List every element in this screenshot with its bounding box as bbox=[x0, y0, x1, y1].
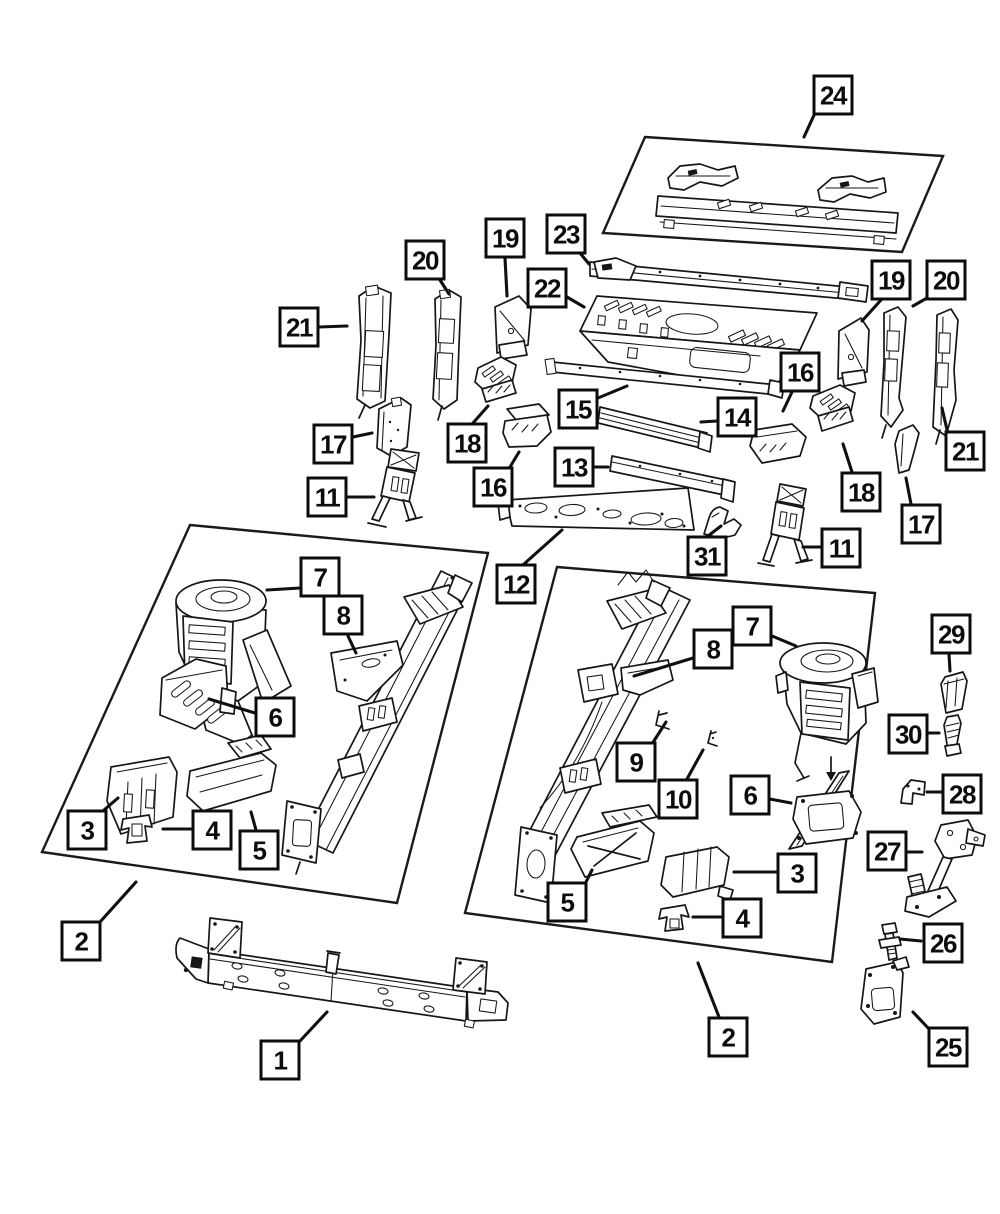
callout-number: 16 bbox=[480, 474, 506, 500]
callout-25[interactable]: 25 bbox=[928, 1027, 969, 1068]
callout-number: 8 bbox=[337, 602, 350, 628]
callout-number: 14 bbox=[724, 404, 750, 430]
callout-2[interactable]: 2 bbox=[61, 921, 102, 962]
callout-number: 10 bbox=[665, 786, 691, 812]
callout-number: 27 bbox=[874, 838, 900, 864]
callout-number: 4 bbox=[206, 817, 219, 843]
callout-15[interactable]: 15 bbox=[558, 389, 599, 430]
callout-3[interactable]: 3 bbox=[777, 853, 818, 894]
callout-number: 16 bbox=[787, 359, 813, 385]
callout-7[interactable]: 7 bbox=[300, 557, 341, 598]
callout-number: 2 bbox=[75, 928, 88, 954]
callout-number: 6 bbox=[269, 704, 282, 730]
callout-number: 15 bbox=[565, 396, 591, 422]
callout-number: 13 bbox=[561, 454, 587, 480]
callout-30[interactable]: 30 bbox=[888, 714, 929, 755]
callout-number: 28 bbox=[949, 781, 975, 807]
callout-11[interactable]: 11 bbox=[307, 477, 348, 518]
callout-number: 6 bbox=[744, 782, 757, 808]
callout-number: 8 bbox=[707, 636, 720, 662]
callout-13[interactable]: 13 bbox=[554, 447, 595, 488]
callout-number: 2 bbox=[722, 1024, 735, 1050]
callout-number: 7 bbox=[314, 564, 327, 590]
callout-17[interactable]: 17 bbox=[313, 424, 354, 465]
callout-23[interactable]: 23 bbox=[546, 214, 587, 255]
callout-31[interactable]: 31 bbox=[687, 536, 728, 577]
callout-number: 20 bbox=[412, 247, 438, 273]
callout-number: 21 bbox=[286, 314, 312, 340]
callout-number: 17 bbox=[908, 511, 934, 537]
callout-5[interactable]: 5 bbox=[547, 882, 588, 923]
callout-number: 30 bbox=[895, 721, 921, 747]
parts-diagram-page: 24 23 19 20 21 22 17 18 16 11 15 14 bbox=[0, 0, 1000, 1214]
callout-17[interactable]: 17 bbox=[901, 504, 942, 545]
callout-19[interactable]: 19 bbox=[871, 260, 912, 301]
callout-number: 18 bbox=[848, 479, 874, 505]
callout-number: 5 bbox=[561, 889, 574, 915]
callout-number: 20 bbox=[933, 267, 959, 293]
callout-number: 17 bbox=[320, 431, 346, 457]
callout-19[interactable]: 19 bbox=[485, 218, 526, 259]
callout-21[interactable]: 21 bbox=[945, 431, 986, 472]
callout-2[interactable]: 2 bbox=[708, 1017, 749, 1058]
callout-6[interactable]: 6 bbox=[730, 775, 771, 816]
callout-20[interactable]: 20 bbox=[405, 240, 446, 281]
callout-12[interactable]: 12 bbox=[496, 564, 537, 605]
callout-29[interactable]: 29 bbox=[931, 614, 972, 655]
callout-3[interactable]: 3 bbox=[67, 810, 108, 851]
callout-number: 29 bbox=[938, 621, 964, 647]
callout-number: 3 bbox=[81, 817, 94, 843]
callout-number: 11 bbox=[829, 535, 854, 561]
callout-28[interactable]: 28 bbox=[942, 774, 983, 815]
callout-20[interactable]: 20 bbox=[926, 260, 967, 301]
callout-number: 12 bbox=[503, 571, 529, 597]
callout-layer: 24 23 19 20 21 22 17 18 16 11 15 14 bbox=[0, 0, 1000, 1214]
callout-number: 19 bbox=[878, 267, 904, 293]
callout-4[interactable]: 4 bbox=[722, 898, 763, 939]
callout-number: 21 bbox=[952, 438, 978, 464]
callout-number: 31 bbox=[694, 543, 720, 569]
callout-5[interactable]: 5 bbox=[239, 830, 280, 871]
callout-number: 25 bbox=[935, 1034, 961, 1060]
callout-10[interactable]: 10 bbox=[658, 779, 699, 820]
callout-1[interactable]: 1 bbox=[260, 1040, 301, 1081]
callout-number: 11 bbox=[315, 484, 340, 510]
callout-4[interactable]: 4 bbox=[192, 810, 233, 851]
callout-27[interactable]: 27 bbox=[867, 831, 908, 872]
callout-number: 18 bbox=[454, 430, 480, 456]
callout-26[interactable]: 26 bbox=[923, 923, 964, 964]
callout-14[interactable]: 14 bbox=[717, 397, 758, 438]
callout-18[interactable]: 18 bbox=[841, 472, 882, 513]
callout-9[interactable]: 9 bbox=[616, 742, 657, 783]
callout-22[interactable]: 22 bbox=[527, 268, 568, 309]
callout-number: 26 bbox=[930, 930, 956, 956]
callout-number: 19 bbox=[492, 225, 518, 251]
callout-8[interactable]: 8 bbox=[693, 629, 734, 670]
callout-18[interactable]: 18 bbox=[447, 423, 488, 464]
callout-24[interactable]: 24 bbox=[813, 75, 854, 116]
callout-number: 5 bbox=[253, 837, 266, 863]
callout-8[interactable]: 8 bbox=[323, 595, 364, 636]
callout-16[interactable]: 16 bbox=[780, 352, 821, 393]
callout-number: 4 bbox=[736, 905, 749, 931]
callout-21[interactable]: 21 bbox=[279, 307, 320, 348]
callout-11[interactable]: 11 bbox=[821, 528, 862, 569]
callout-number: 9 bbox=[630, 749, 643, 775]
callout-number: 7 bbox=[746, 613, 759, 639]
callout-6[interactable]: 6 bbox=[255, 697, 296, 738]
callout-number: 1 bbox=[274, 1047, 287, 1073]
callout-number: 3 bbox=[791, 860, 804, 886]
callout-7[interactable]: 7 bbox=[732, 606, 773, 647]
callout-number: 24 bbox=[820, 82, 846, 108]
callout-number: 23 bbox=[553, 221, 579, 247]
callout-number: 22 bbox=[534, 275, 560, 301]
callout-16[interactable]: 16 bbox=[473, 467, 514, 508]
